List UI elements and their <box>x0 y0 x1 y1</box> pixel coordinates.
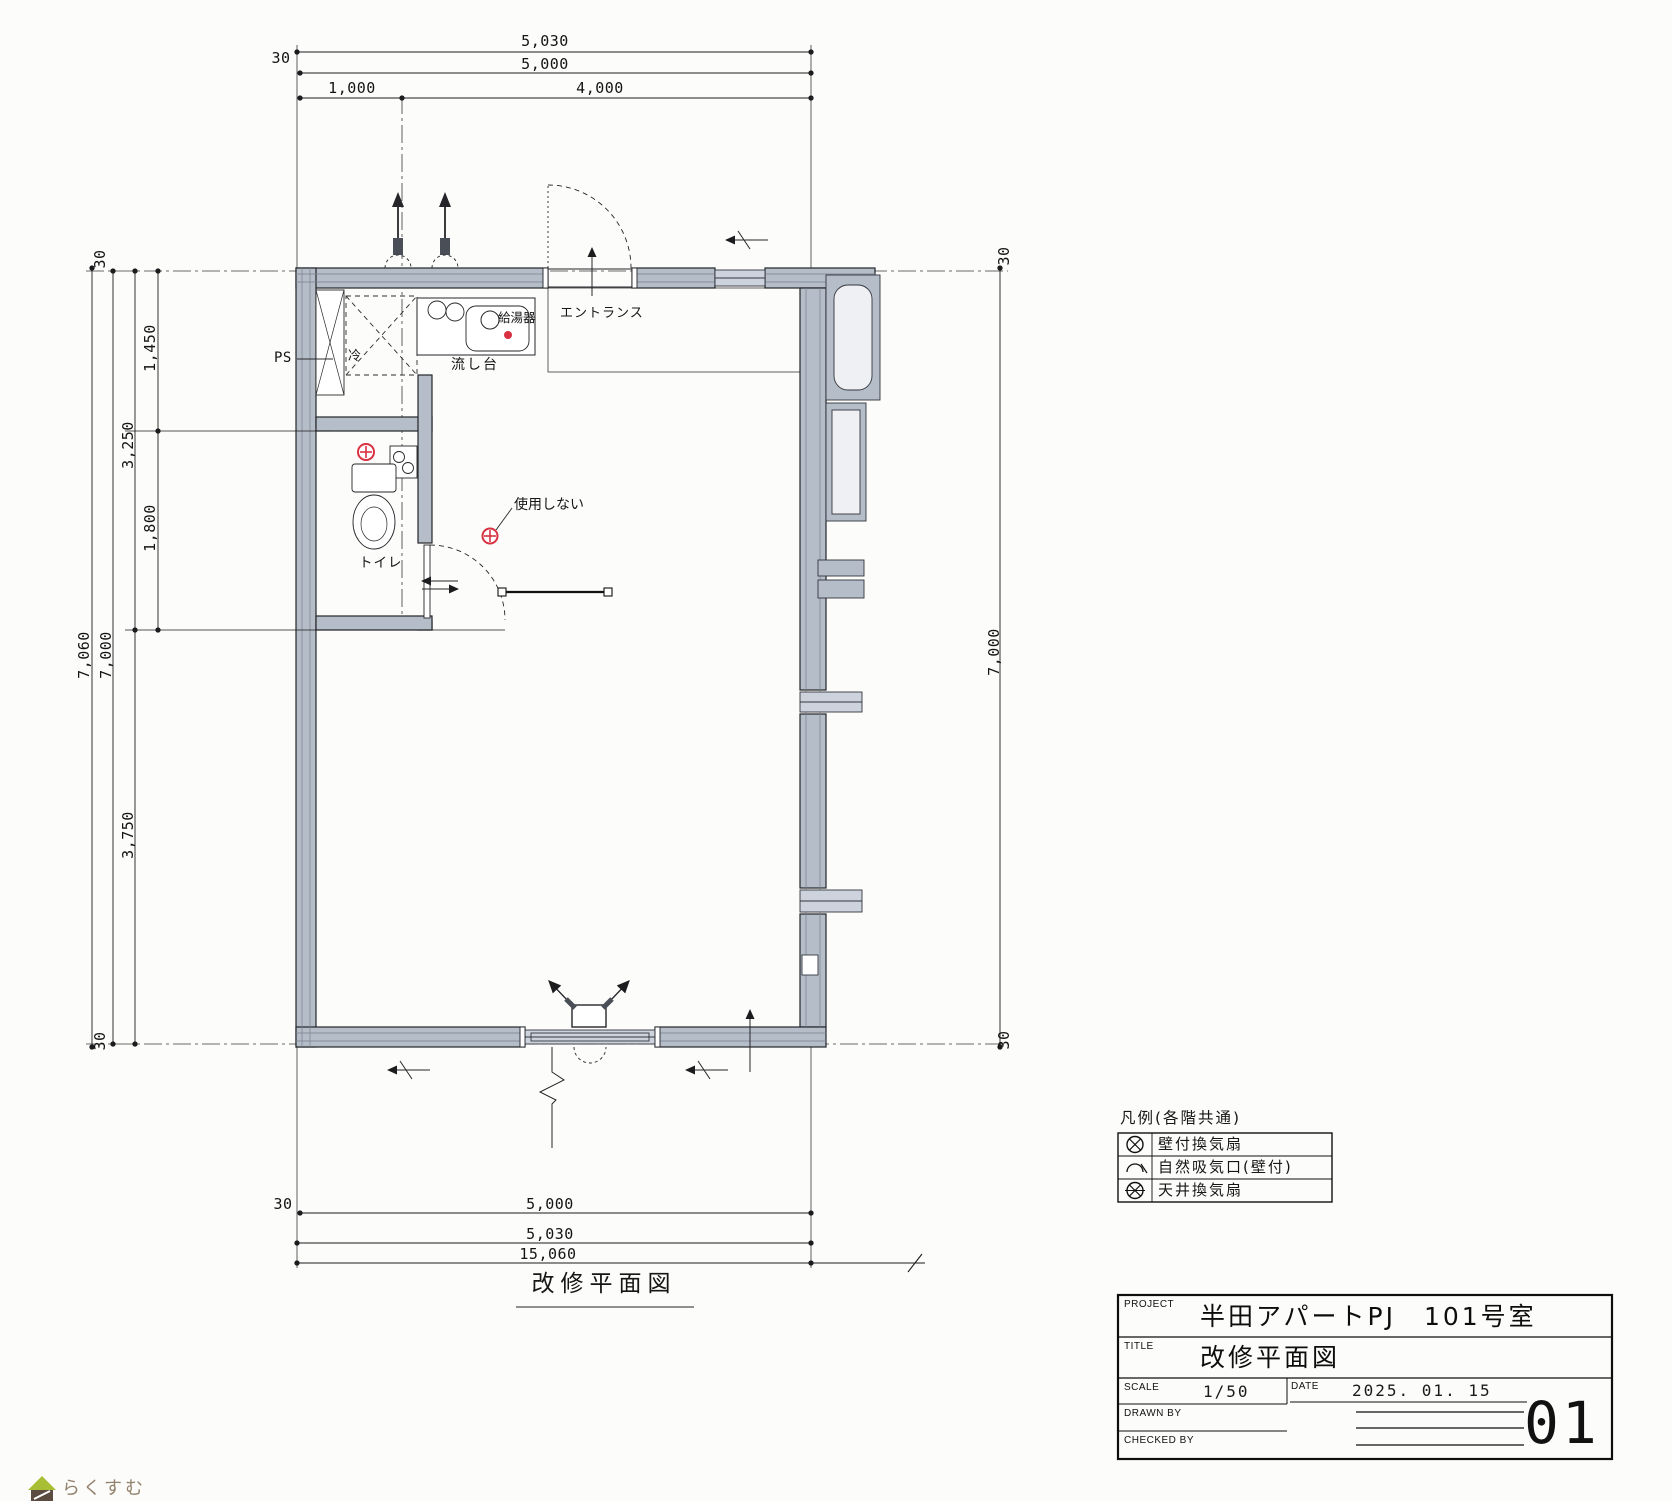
toilet-fixtures <box>352 446 417 549</box>
dim-top-seg-right: 4,000 <box>560 80 640 97</box>
legend-row-label: 天井換気扇 <box>1158 1182 1243 1199</box>
dim-right-offset-bottom: 30 <box>996 1005 1014 1075</box>
date-value: 2025. 01. 15 <box>1352 1382 1492 1400</box>
floor-plan-drawing <box>0 0 1672 1501</box>
title-value: 改修平面図 <box>1200 1344 1340 1372</box>
legend-row-label: 自然吸気口(壁付) <box>1158 1159 1293 1176</box>
entrance-label: エントランス <box>560 307 644 321</box>
blueprint-page: 5,030 5,000 30 1,000 4,000 30 7,060 7,00… <box>0 0 1672 1501</box>
house-logo-icon <box>28 1476 56 1501</box>
dim-bottom-offset: 30 <box>270 1196 296 1213</box>
wall-fan-icon <box>1127 1137 1143 1153</box>
opening-jambs <box>520 268 660 1047</box>
checked-by-label: CHECKED BY <box>1124 1435 1194 1446</box>
exhaust-arrows <box>385 192 458 268</box>
legend-title: 凡例(各階共通) <box>1120 1110 1241 1127</box>
fridge-label: 冷 <box>348 350 361 364</box>
ceiling-fan-icon <box>1125 1183 1145 1199</box>
drawn-by-label: DRAWN BY <box>1124 1408 1182 1419</box>
water-heater-icon <box>481 311 499 329</box>
project-label: PROJECT <box>1124 1299 1174 1310</box>
dim-left-lower: 3,750 <box>120 800 138 870</box>
entrance-floor-outline <box>548 288 800 372</box>
sliding-direction-arrows <box>388 231 768 1079</box>
dim-right-inner: 7,000 <box>986 617 1004 687</box>
dimension-lines <box>90 45 1002 1272</box>
scale-label: SCALE <box>1124 1382 1159 1393</box>
logo-text: らくすむ <box>62 1479 146 1499</box>
wall-fan-icon <box>483 529 498 544</box>
removed-partition-bar <box>498 588 612 596</box>
natural-intake-icon <box>432 255 458 268</box>
adjacent-bathtub <box>834 285 872 390</box>
dim-left-offset-top: 30 <box>92 224 110 294</box>
wall-detail-lines <box>296 268 875 1047</box>
natural-intake-icon <box>574 1047 606 1063</box>
dim-left-upper: 1,450 <box>142 313 160 383</box>
dim-left-offset-bottom: 30 <box>92 1006 110 1076</box>
dim-right-offset-top: 30 <box>996 221 1014 291</box>
sink-unit-label: 流し台 <box>451 358 499 373</box>
ps-label: PS <box>274 351 292 366</box>
wall-fan-icon <box>358 444 374 460</box>
drawing-caption: 改修平面図 <box>504 1272 704 1297</box>
dim-bottom-inner: 5,000 <box>495 1196 605 1213</box>
sheet-number: 01 <box>1524 1392 1600 1456</box>
legend-row-label: 壁付換気扇 <box>1158 1136 1243 1153</box>
dim-top-offset: 30 <box>268 50 294 67</box>
dim-left-outer: 7,060 <box>76 620 94 690</box>
toilet-label: トイレ <box>359 556 403 571</box>
natural-intake-icon <box>1127 1164 1147 1173</box>
water-heater-label: 給湯器 <box>498 311 536 325</box>
project-value: 半田アパートPJ 101号室 <box>1200 1303 1537 1331</box>
title-label: TITLE <box>1124 1341 1154 1352</box>
section-break-mark <box>540 1047 564 1148</box>
dim-bottom-outer: 5,030 <box>495 1226 605 1243</box>
dim-left-upper-group: 3,250 <box>120 410 138 480</box>
natural-intake-icon <box>385 255 411 268</box>
red-dot-marker <box>504 331 512 339</box>
entrance-door <box>548 185 631 296</box>
dim-left-inner: 7,000 <box>98 620 116 690</box>
bottom-window-symbols <box>540 981 750 1148</box>
dim-left-mid: 1,800 <box>142 493 160 563</box>
kitchen-sink-unit <box>417 298 535 355</box>
dim-bottom-overall: 15,060 <box>488 1246 608 1263</box>
dim-top-inner: 5,000 <box>490 56 600 73</box>
dim-top-outer: 5,030 <box>490 33 600 50</box>
walls <box>296 268 875 1047</box>
grid-chain-lines <box>86 96 1008 1044</box>
toilet-door <box>422 545 505 620</box>
do-not-use-leader <box>496 508 512 530</box>
dim-top-seg-left: 1,000 <box>312 80 392 97</box>
scale-value: 1/50 <box>1203 1383 1250 1401</box>
do-not-use-label: 使用しない <box>514 498 584 513</box>
legend-symbols <box>1125 1137 1147 1199</box>
date-label: DATE <box>1291 1381 1319 1392</box>
